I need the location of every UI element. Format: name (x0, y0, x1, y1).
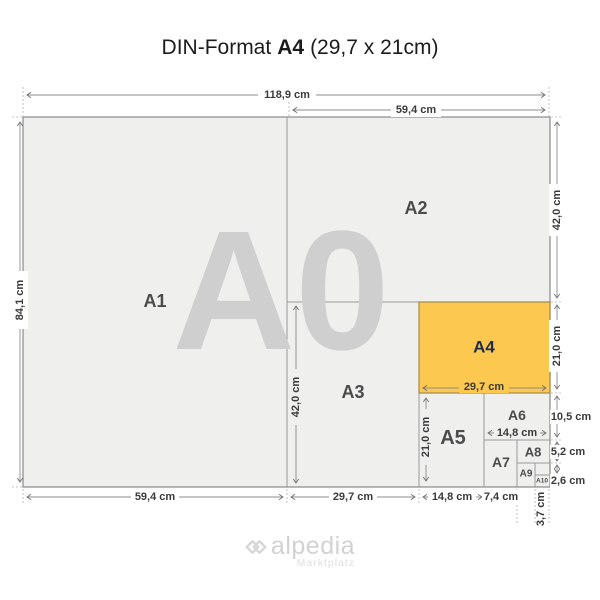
paper-sizes-diagram: A0 (0, 0, 600, 600)
label-a10: A10 (536, 478, 548, 485)
dim-a6-width: 14,8 cm (497, 427, 538, 439)
title-size: (29,7 x 21cm) (310, 36, 438, 60)
title-prefix: DIN-Format (162, 36, 272, 60)
dim-a5-width: 14,8 cm (432, 491, 473, 503)
dim-a2-width: 59,4 cm (396, 104, 437, 116)
dim-a2-height: 42,0 cm (551, 190, 563, 231)
logo-name: alpedia (271, 534, 355, 558)
dim-total-width: 118,9 cm (264, 89, 310, 101)
a0-watermark: A0 (172, 196, 389, 386)
dim-a10-height: 2,6 cm (551, 475, 585, 487)
dim-a4-height: 21,0 cm (551, 326, 563, 367)
alpedia-logo: alpedia Marktplatz (0, 534, 600, 569)
dim-a1-width: 59,4 cm (135, 491, 176, 503)
label-a7: A7 (492, 454, 510, 470)
din-format-infographic: DIN-Format A4 (29,7 x 21cm) A0 (0, 0, 600, 600)
dim-total-height: 84,1 cm (14, 280, 26, 321)
alpedia-logo-icon (245, 538, 267, 556)
dim-a4-width: 29,7 cm (464, 381, 505, 393)
label-a5: A5 (440, 427, 466, 449)
label-a9: A9 (520, 469, 533, 480)
dim-a10-width: 3,7 cm (535, 492, 547, 526)
page-title: DIN-Format A4 (29,7 x 21cm) (0, 36, 600, 60)
label-a3: A3 (341, 382, 364, 402)
dim-a5-height: 21,0 cm (420, 417, 432, 458)
dim-a3-width: 29,7 cm (333, 491, 374, 503)
label-a8: A8 (525, 445, 542, 460)
dim-a8-height: 5,2 cm (551, 446, 585, 458)
logo-tagline: Marktplatz (297, 557, 355, 569)
label-a1: A1 (143, 291, 166, 311)
dim-a6-height: 10,5 cm (551, 411, 592, 423)
label-a2: A2 (404, 198, 427, 218)
label-a4: A4 (473, 338, 495, 357)
dim-a7-width: 7,4 cm (484, 491, 518, 503)
label-a6: A6 (508, 407, 526, 423)
dim-a3-height: 42,0 cm (290, 377, 302, 418)
title-format: A4 (277, 36, 304, 60)
